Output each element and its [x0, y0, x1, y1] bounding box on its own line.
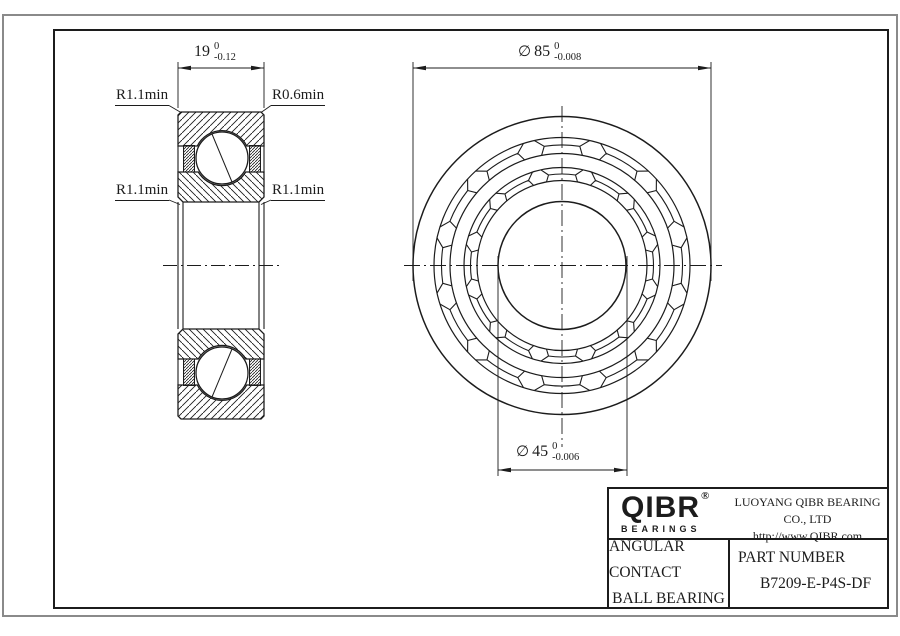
logo-text: QIBR	[621, 491, 700, 524]
dim-width-value: 19	[194, 43, 210, 61]
diameter-symbol: ∅	[516, 442, 529, 461]
part-number-cell: PART NUMBER B7209-E-P4S-DF	[730, 538, 888, 608]
radius-label-mid-right: R1.1min	[271, 182, 325, 201]
dim-bore-tolerance: 0 -0.006	[552, 442, 579, 463]
part-number-label: PART NUMBER	[738, 545, 888, 571]
title-block-detail-row: ANGULAR CONTACT BALL BEARING PART NUMBER…	[609, 538, 888, 608]
dim-width-text: 19 0 -0.12	[194, 41, 236, 62]
radius-label-top-left: R1.1min	[115, 87, 169, 106]
cage-section	[250, 359, 261, 386]
cage-section	[250, 146, 261, 173]
part-number: B7209-E-P4S-DF	[738, 571, 888, 597]
product-type-line2: BALL BEARING	[612, 586, 725, 612]
radius-label-mid-left: R1.1min	[115, 182, 169, 201]
product-type-line1: ANGULAR CONTACT	[609, 534, 728, 586]
title-block-header-row: QIBR® BEARINGS LUOYANG QIBR BEARING CO.,…	[609, 489, 888, 540]
company-name: LUOYANG QIBR BEARING CO., LTD	[729, 494, 886, 528]
logo-subtext: BEARINGS	[621, 525, 709, 534]
product-type-cell: ANGULAR CONTACT BALL BEARING	[609, 538, 730, 608]
cage-section	[184, 146, 195, 173]
dim-bore-value: 45	[532, 443, 548, 461]
title-block: QIBR® BEARINGS LUOYANG QIBR BEARING CO.,…	[607, 487, 888, 608]
dim-od-tolerance: 0 -0.008	[554, 42, 581, 63]
radius-label-top-right: R0.6min	[271, 87, 325, 106]
drawing-sheet: 19 0 -0.12 ∅ 85 0 -0.008 ∅ 45 0 -0.006 R…	[0, 0, 900, 636]
diameter-symbol: ∅	[518, 42, 531, 61]
dim-od-value: 85	[534, 43, 550, 61]
cage-section	[184, 359, 195, 386]
company-logo: QIBR® BEARINGS	[621, 491, 709, 534]
registered-mark: ®	[701, 490, 709, 502]
dim-bore-text: ∅ 45 0 -0.006	[516, 441, 579, 462]
dim-width-tolerance: 0 -0.12	[214, 42, 236, 63]
dim-od-text: ∅ 85 0 -0.008	[518, 41, 581, 62]
